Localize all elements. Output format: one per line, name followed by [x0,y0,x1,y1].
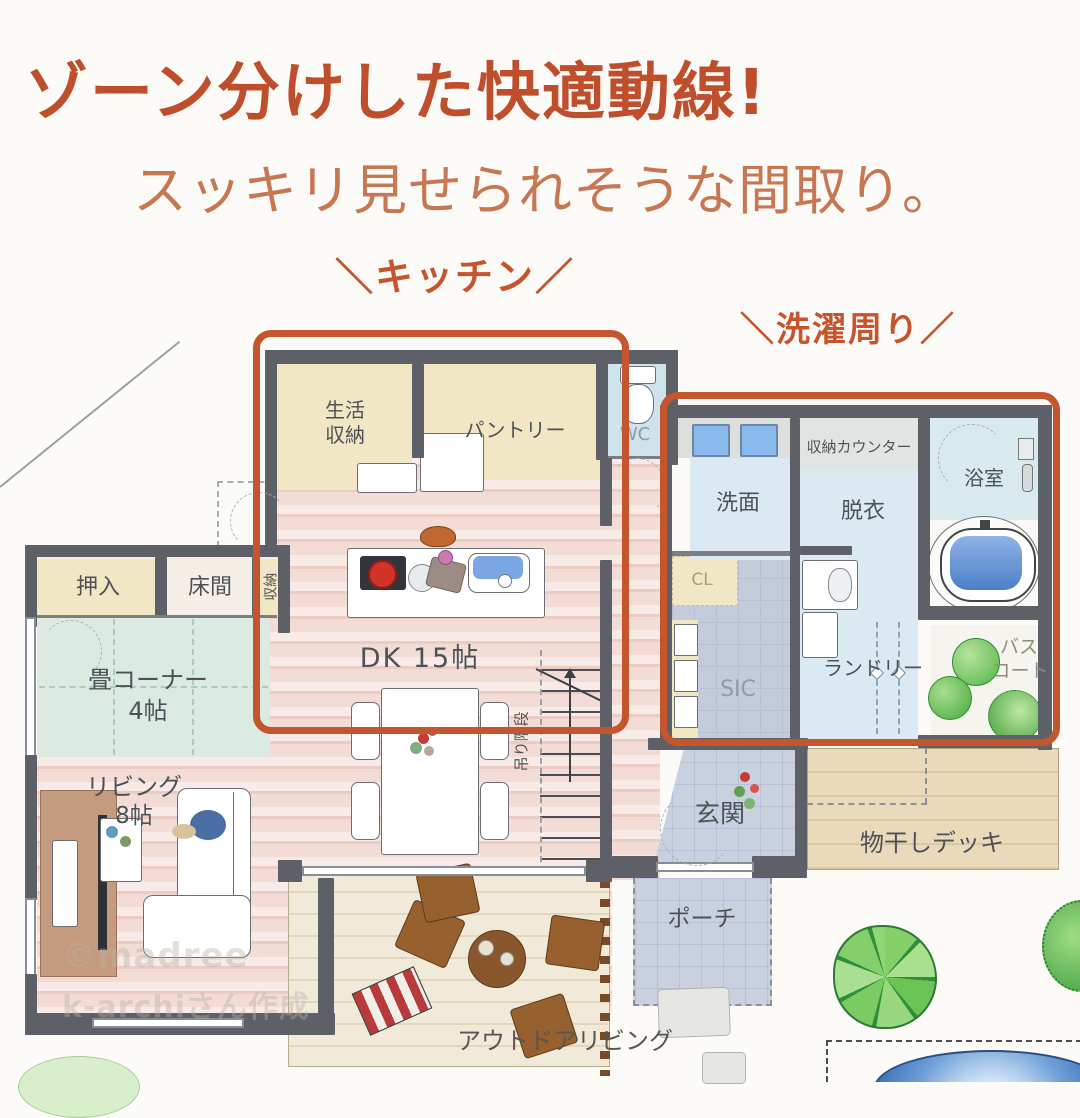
label-genkan: 玄関 [682,798,758,829]
wall [318,878,334,1028]
label-tokonoma: 床間 [170,574,250,602]
table-dish [478,940,494,956]
label-porch: ポーチ [662,905,742,934]
dining-chair [351,782,380,840]
laundry-zone-outline [660,392,1060,746]
genkan-plant [734,786,745,797]
pool [874,1050,1080,1082]
window [25,898,36,976]
label-tatami1: 畳コーナー [68,665,228,695]
sliding-door [302,866,586,876]
label-outdoor-living: アウトドアリビング [450,1026,680,1056]
genkan-flower [740,772,750,782]
table-flowers [410,742,422,754]
page-subtitle: スッキリ見せられそうな間取り。 [133,146,957,225]
wall [25,755,37,900]
label-living1: リビング [64,772,204,802]
spiky-bush [1042,900,1080,992]
pool-area [826,1040,1080,1082]
fusuma-line [37,615,277,618]
watermark-line1: ©madree [62,936,249,976]
property-line [0,341,180,488]
wall [25,545,290,557]
dining-chair [480,782,509,840]
outdoor-chair [545,914,605,971]
table-dish [500,952,514,966]
label-tatami2: 4帖 [68,696,228,726]
watermark-line2: k-archiさん作成 [62,982,310,1026]
floorplan-poster: { "header": { "title": "ゾーン分けした快適動線!", "… [0,0,1080,1080]
outdoor-table [468,930,526,988]
deck-eaves-dashed [807,803,927,805]
table-flowers [424,746,434,756]
wall [155,557,167,617]
table-item [120,836,131,847]
label-oshiire: 押入 [48,574,148,602]
label-living2: 8帖 [64,802,204,831]
corner-bush [18,1056,140,1118]
window [25,617,36,757]
label-monohoshi-deck: 物干しデッキ [842,828,1022,858]
wall [612,856,658,878]
kitchen-zone-label: ＼キッチン／ [335,246,575,301]
stepping-stone [702,1052,746,1084]
wall-post [586,860,612,882]
laundry-zone-label: ＼洗濯周り／ [740,302,956,351]
garden-tree [833,925,937,1029]
genkan-flower [750,784,759,793]
wall [795,738,807,878]
deck-eaves-dashed [925,748,927,804]
page-title: ゾーン分けした快適動線! [25,42,768,133]
kitchen-zone-outline [253,330,629,734]
wall [25,545,37,627]
tv-board [52,840,78,927]
wall-post [278,860,302,882]
